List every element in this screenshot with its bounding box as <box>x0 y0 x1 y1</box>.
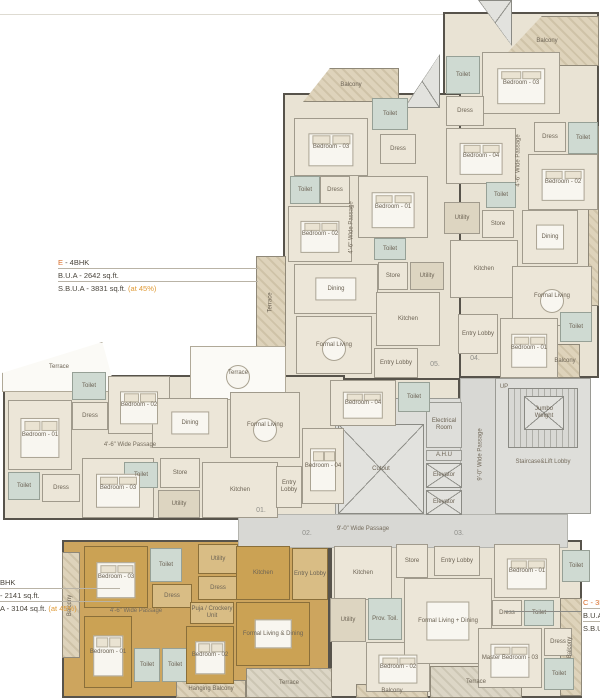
bed-furniture <box>542 169 585 201</box>
prov-toil: Prov. Toil. <box>368 598 402 640</box>
entry-lobby: Entry Lobby <box>458 314 498 354</box>
elevator-label: Elevator <box>433 499 455 506</box>
terrace: Terrace <box>256 256 286 348</box>
cutout: Cutout <box>338 424 424 514</box>
unit-e-label: E - 4BHK <box>58 258 258 269</box>
dress-label: Dress <box>542 134 558 141</box>
05: 05. <box>424 360 446 370</box>
a-h-u-label: A.H.U <box>436 452 452 459</box>
dress: Dress <box>492 600 522 626</box>
balcony-label: Balcony <box>340 82 361 89</box>
4-6-wide-passage: 4'-6" Wide Passage <box>346 198 358 256</box>
bed-furniture <box>93 635 123 676</box>
toilet-label: Toilet <box>456 72 470 79</box>
bed-furniture <box>497 68 545 104</box>
bedroom-04: Bedroom - 04 <box>302 428 344 504</box>
bed-furniture <box>372 192 415 228</box>
table-furniture <box>315 277 356 300</box>
store-label: Store <box>405 558 419 565</box>
toilet-label: Toilet <box>407 394 421 401</box>
bed-furniture <box>507 558 547 589</box>
entry-lobby-label: Entry Lobby <box>462 331 494 338</box>
bed-furniture <box>300 221 339 253</box>
kitchen-label: Kitchen <box>474 266 494 273</box>
toilet-label: Toilet <box>159 562 173 569</box>
toilet-label: Toilet <box>494 192 508 199</box>
02: 02. <box>296 529 318 539</box>
toilet-label: Toilet <box>140 662 154 669</box>
toilet: Toilet <box>372 98 408 130</box>
balcony-label: Balcony <box>536 38 557 45</box>
toilet: Toilet <box>162 648 188 682</box>
bed-furniture <box>460 143 503 175</box>
bed-furniture <box>511 334 547 368</box>
table-furniture <box>536 225 564 250</box>
4-6-wide-passage: 4'-6" Wide Passage <box>62 438 198 452</box>
bedroom-01: Bedroom - 01 <box>8 400 72 470</box>
9-0-wide-passage: 9'-0" Wide Passage <box>464 418 498 490</box>
toilet: Toilet <box>290 176 320 204</box>
toilet-label: Toilet <box>82 383 96 390</box>
unit-a-sbua-text: A - 3104 sq.ft. <box>0 604 46 613</box>
unit-e-bua: B.U.A - 2642 sq.ft. <box>58 271 258 282</box>
unit-a-bua: - 2141 sq.ft. <box>0 591 120 602</box>
formal-living-dining: Formal Living & Dining <box>236 602 310 666</box>
toilet: Toilet <box>562 550 590 582</box>
round-furniture <box>540 289 564 313</box>
dress-label: Dress <box>82 413 98 420</box>
utility-label: Utility <box>211 556 226 563</box>
store-label: Store <box>386 273 400 280</box>
bedroom-03: Bedroom - 03 <box>294 118 368 176</box>
store: Store <box>160 458 200 488</box>
toilet: Toilet <box>8 472 40 500</box>
formal-living: Formal Living <box>230 392 300 458</box>
bed-furniture <box>195 641 225 674</box>
kitchen-label: Kitchen <box>353 570 373 577</box>
unit-a-annotation: BHK - 2141 sq.ft. A - 3104 sq.ft. (at 45… <box>0 578 120 616</box>
unit-e-annotation: E - 4BHK B.U.A - 2642 sq.ft. S.B.U.A - 3… <box>58 258 258 296</box>
kitchen-label: Kitchen <box>230 487 250 494</box>
9-0-wide-passage-label: 9'-0" Wide Passage <box>337 526 389 533</box>
01-label: 01. <box>256 507 266 515</box>
electrical-room: Electrical Room <box>426 402 462 448</box>
round-furniture <box>322 337 346 361</box>
9-0-wide-passage-label: 9'-0" Wide Passage <box>478 428 485 480</box>
dress-label: Dress <box>53 485 69 492</box>
puja-crockery-unit: Puja / Crockery Unit <box>190 602 234 624</box>
02-label: 02. <box>302 530 312 538</box>
elevator: Elevator <box>426 463 462 488</box>
dress-label: Dress <box>550 639 566 646</box>
floor-plan: BalconyBalconyTerraceTerraceTerraceBalco… <box>0 0 600 700</box>
utility: Utility <box>330 598 366 642</box>
bedroom-04: Bedroom - 04 <box>330 380 396 426</box>
cutout-label: Cutout <box>372 466 390 473</box>
bed-furniture <box>490 644 529 678</box>
4-6-wide-passage-label: 4'-6" Wide Passage <box>349 201 356 253</box>
entry-lobby-label: Entry Lobby <box>441 558 473 565</box>
entry-lobby: Entry Lobby <box>374 348 418 378</box>
05-label: 05. <box>430 361 440 369</box>
jumbo-weight: Jumbo Weight <box>524 396 564 430</box>
a-h-u: A.H.U <box>426 450 462 461</box>
toilet: Toilet <box>524 600 554 626</box>
toilet: Toilet <box>560 312 592 342</box>
entry-lobby: Entry Lobby <box>434 546 480 576</box>
bedroom-01: Bedroom - 01 <box>494 544 560 598</box>
master-bedroom-03: Master Bedroom - 03 <box>478 628 542 688</box>
unit-e-type: - 4BHK <box>65 258 89 267</box>
bedroom-02: Bedroom - 02 <box>288 206 352 262</box>
entry-lobby-label: Entry Lobby <box>277 480 301 494</box>
utility-label: Utility <box>420 273 435 280</box>
prov-toil-label: Prov. Toil. <box>372 616 398 623</box>
toilet: Toilet <box>544 658 574 690</box>
formal-living: Formal Living <box>296 316 372 374</box>
01: 01. <box>250 506 272 516</box>
bed-furniture <box>378 655 417 684</box>
jumbo-weight-label: Jumbo Weight <box>525 406 563 420</box>
unit-a-sbua: A - 3104 sq.ft. (at 45%) <box>0 604 120 614</box>
dress: Dress <box>72 402 108 430</box>
unit-e-sbua-text: S.B.U.A - 3831 sq.ft. <box>58 284 126 293</box>
dress: Dress <box>380 134 416 164</box>
toilet-label: Toilet <box>569 563 583 570</box>
kitchen: Kitchen <box>236 546 290 600</box>
bedroom-01: Bedroom - 01 <box>500 318 558 378</box>
bed-furniture <box>20 418 59 458</box>
4-6-wide-passage-label: 4'-6" Wide Passage <box>104 442 156 449</box>
electrical-room-label: Electrical Room <box>427 418 461 432</box>
03-label: 03. <box>454 530 464 538</box>
toilet-label: Toilet <box>17 483 31 490</box>
toilet: Toilet <box>568 122 598 154</box>
store: Store <box>396 544 428 578</box>
bedroom-01: Bedroom - 01 <box>84 616 132 688</box>
utility: Utility <box>198 544 238 574</box>
staircase-lift-lobby-label: Staircase&Lift Lobby <box>515 459 570 466</box>
dress: Dress <box>446 96 484 126</box>
unit-a-label: BHK <box>0 578 120 589</box>
04-label: 04. <box>470 355 480 363</box>
dress-label: Dress <box>457 108 473 115</box>
unit-c-sbua: S.B.U.A <box>583 624 600 634</box>
balcony: Balcony <box>303 68 399 102</box>
toilet-label: Toilet <box>569 324 583 331</box>
kitchen: Kitchen <box>334 546 392 600</box>
toilet-label: Toilet <box>552 671 566 678</box>
toilet: Toilet <box>398 382 430 412</box>
unit-a-at: (at 45%) <box>48 604 76 613</box>
terrace-label: Terrace <box>268 292 275 312</box>
03: 03. <box>448 529 470 539</box>
dress: Dress <box>534 122 566 152</box>
4-6-wide-passage-label: 4'-6" Wide Passage <box>516 134 523 186</box>
terrace-label: Terrace <box>279 680 299 687</box>
up-label: UP <box>500 384 508 391</box>
entry-lobby-label: Entry Lobby <box>294 571 326 578</box>
staircase-lift-lobby: Staircase&Lift Lobby <box>497 456 589 468</box>
dining: Dining <box>294 264 378 314</box>
terrace-label: Terrace <box>49 364 69 371</box>
store: Store <box>482 210 514 238</box>
unit-c-leader-line <box>505 611 582 612</box>
dress-label: Dress <box>390 146 406 153</box>
utility: Utility <box>410 262 444 290</box>
store-label: Store <box>491 221 505 228</box>
bed-furniture <box>120 391 158 424</box>
unit-c-bua: B.U.A - <box>583 611 600 622</box>
bedroom-04: Bedroom - 04 <box>446 128 516 184</box>
unit-e-sbua: S.B.U.A - 3831 sq.ft. (at 45%) <box>58 284 258 294</box>
bedroom-03: Bedroom - 03 <box>482 52 560 114</box>
toilet-label: Toilet <box>576 135 590 142</box>
dress: Dress <box>544 628 572 656</box>
unit-c-label: C - 3B <box>583 598 600 609</box>
toilet: Toilet <box>72 372 106 400</box>
dress: Dress <box>198 576 238 600</box>
utility: Utility <box>158 490 200 518</box>
toilet: Toilet <box>446 56 480 94</box>
kitchen: Kitchen <box>450 240 518 298</box>
table-furniture <box>255 619 292 648</box>
bed-furniture <box>343 392 383 419</box>
bedroom-02: Bedroom - 02 <box>186 626 234 684</box>
toilet-label: Toilet <box>298 187 312 194</box>
unit-e-at: (at 45%) <box>128 284 156 293</box>
round-furniture <box>253 418 277 442</box>
round-furniture <box>226 365 250 389</box>
bed-furniture <box>310 448 336 491</box>
entry-lobby: Entry Lobby <box>276 466 302 508</box>
up: UP <box>496 382 512 392</box>
elevator: Elevator <box>426 490 462 515</box>
kitchen-label: Kitchen <box>253 570 273 577</box>
store: Store <box>378 262 408 290</box>
terrace: Terrace <box>246 668 332 698</box>
toilet: Toilet <box>134 648 160 682</box>
dress: Dress <box>42 474 80 502</box>
bed-furniture <box>96 474 140 508</box>
utility: Utility <box>444 202 480 234</box>
entry-lobby: Entry Lobby <box>292 548 328 600</box>
toilet: Toilet <box>150 548 182 582</box>
utility-label: Utility <box>172 501 187 508</box>
entry-lobby-label: Entry Lobby <box>380 360 412 367</box>
hanging-balcony-label: Hanging Balcony <box>188 686 233 693</box>
dress: Dress <box>152 584 192 608</box>
puja-crockery-unit-label: Puja / Crockery Unit <box>191 606 233 620</box>
table-furniture <box>426 602 469 641</box>
unit-c-annotation: C - 3B B.U.A - S.B.U.A <box>583 598 600 636</box>
kitchen-label: Kitchen <box>398 316 418 323</box>
utility-label: Utility <box>455 215 470 222</box>
toilet-label: Toilet <box>383 246 397 253</box>
dress-label: Dress <box>164 593 180 600</box>
kitchen: Kitchen <box>376 292 440 346</box>
utility-label: Utility <box>341 617 356 624</box>
bedroom-02: Bedroom - 02 <box>528 154 598 210</box>
04: 04. <box>464 354 486 364</box>
bedroom-01: Bedroom - 01 <box>358 176 428 238</box>
4-6-wide-passage: 4'-6" Wide Passage <box>512 128 526 192</box>
bed-furniture <box>308 133 353 166</box>
toilet-label: Toilet <box>383 111 397 118</box>
store-label: Store <box>173 470 187 477</box>
toilet: Toilet <box>374 238 406 260</box>
elevator-label: Elevator <box>433 472 455 479</box>
table-furniture <box>171 411 209 434</box>
9-0-wide-passage: 9'-0" Wide Passage <box>308 521 418 537</box>
dress-label: Dress <box>327 187 343 194</box>
toilet-label: Toilet <box>168 662 182 669</box>
dress-label: Dress <box>210 585 226 592</box>
dining: Dining <box>522 210 578 264</box>
